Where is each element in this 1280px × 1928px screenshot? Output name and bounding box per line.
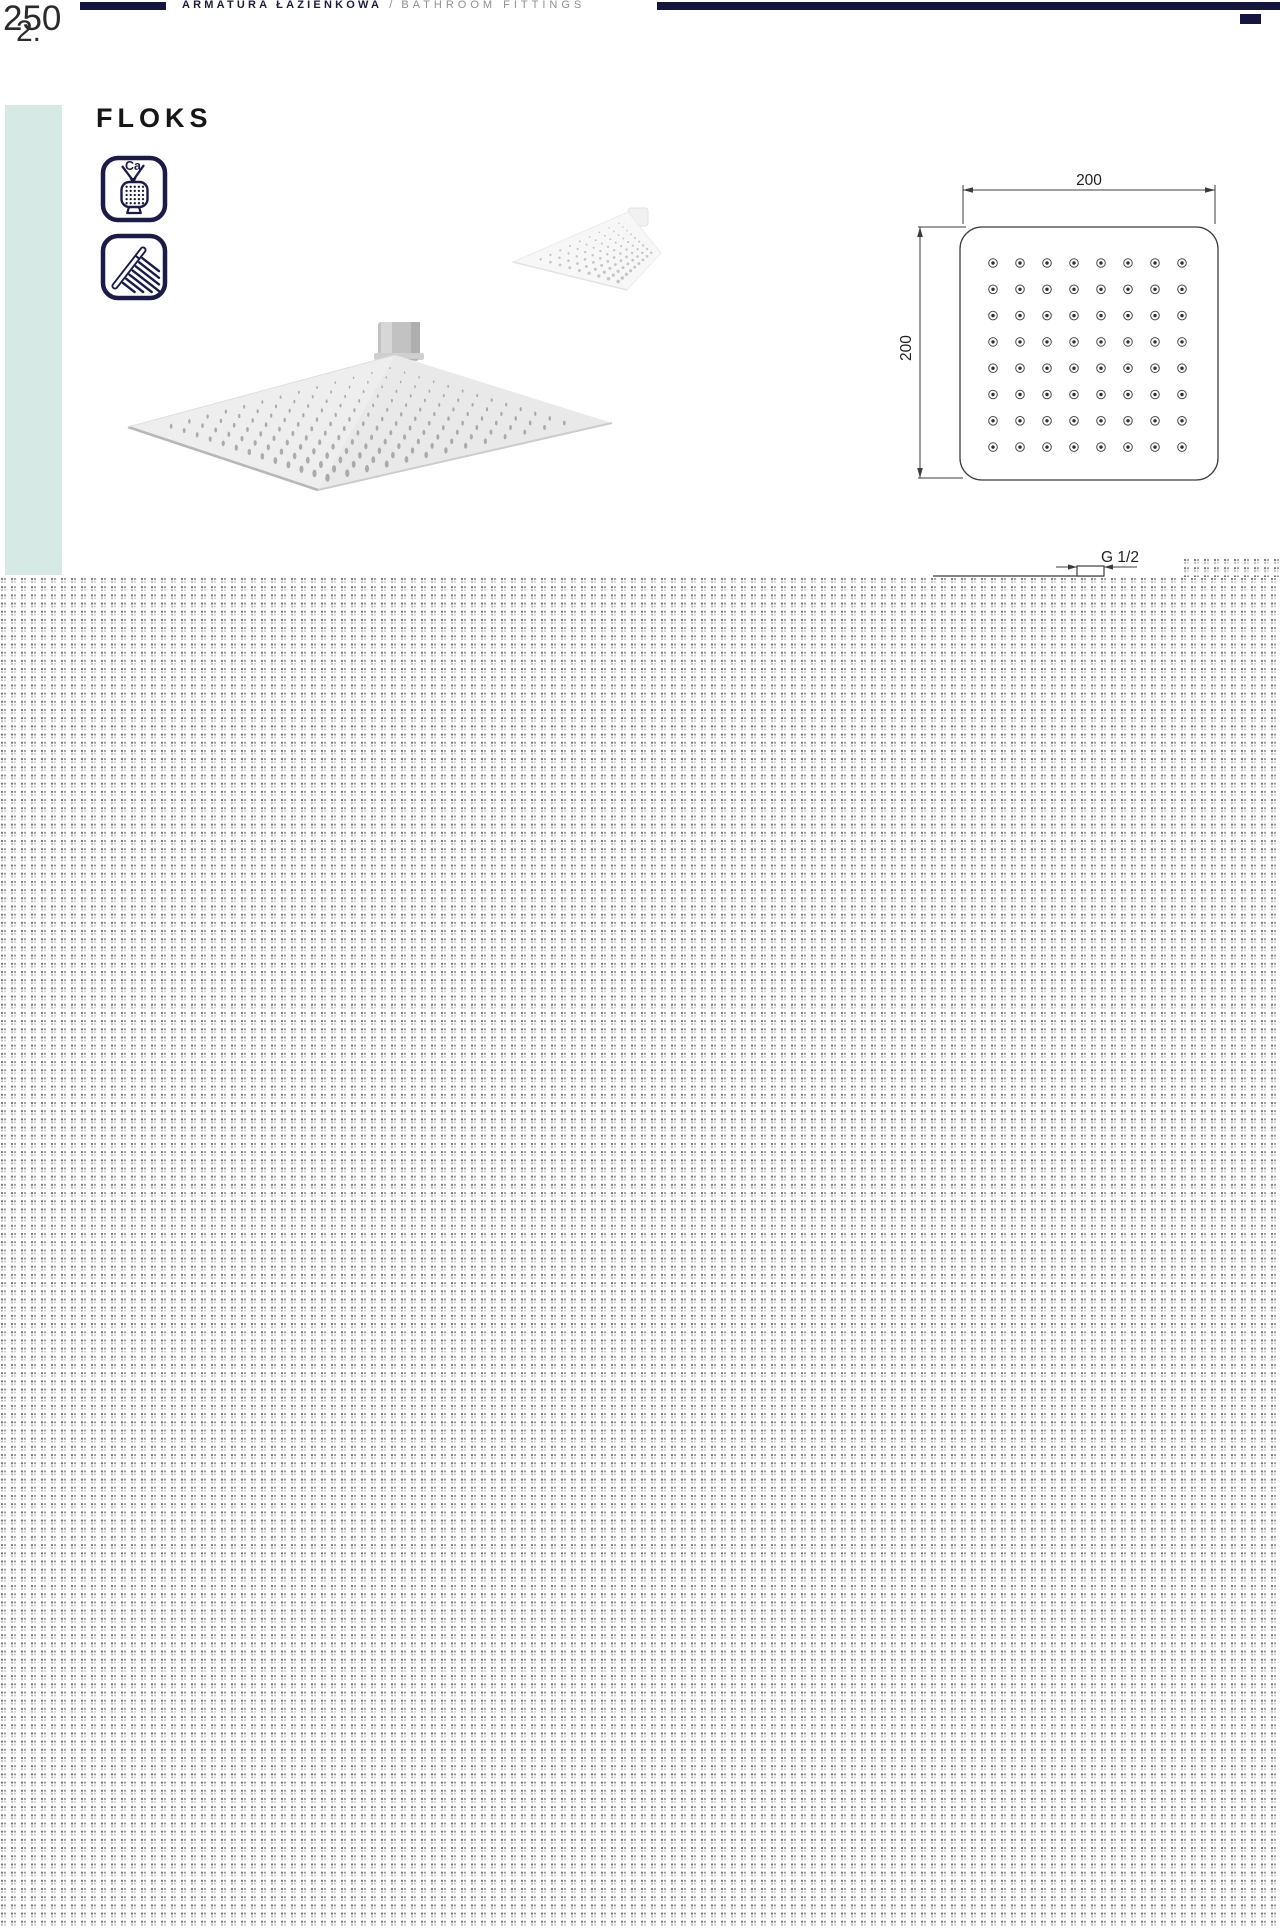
dim-width-label: 200 xyxy=(1076,172,1102,189)
accent-sidebar xyxy=(5,105,62,575)
header-line-right xyxy=(657,2,1280,10)
section-title-pl: ARMATURA ŁAZIENKOWA xyxy=(182,0,382,11)
product-photo-large xyxy=(95,310,625,500)
arrow xyxy=(917,227,923,237)
header-bar-left xyxy=(80,2,166,10)
section-separator: / xyxy=(389,0,394,11)
dim-height-label: 200 xyxy=(898,335,915,361)
arrow xyxy=(1205,187,1215,193)
section-title-en: BATHROOM FITTINGS xyxy=(401,0,585,11)
connector-highlight xyxy=(381,322,392,355)
product-photo-small xyxy=(475,195,665,300)
header-breadcrumb: ARMATURA ŁAZIENKOWA / BATHROOM FITTINGS xyxy=(182,0,585,11)
hand-shower-icon xyxy=(100,233,168,301)
arrow xyxy=(963,187,973,193)
thread-label: G 1/2 xyxy=(1101,549,1139,566)
technical-drawing: 200 200 G 1/2 xyxy=(880,140,1280,582)
header-dash-mark xyxy=(1240,14,1261,24)
product-title: FLOKS xyxy=(96,103,213,134)
catalog-page: 250 2. ARMATURA ŁAZIENKOWA / BATHROOM FI… xyxy=(0,0,1280,1928)
connector-shade xyxy=(411,322,420,355)
halftone-dots-background xyxy=(0,577,1280,1928)
page-number-fragment: 2. xyxy=(16,17,41,47)
arrow xyxy=(917,468,923,478)
arrow xyxy=(1068,564,1077,569)
side-view-connector xyxy=(1077,566,1104,576)
anti-limescale-icon: Ca xyxy=(100,155,168,223)
